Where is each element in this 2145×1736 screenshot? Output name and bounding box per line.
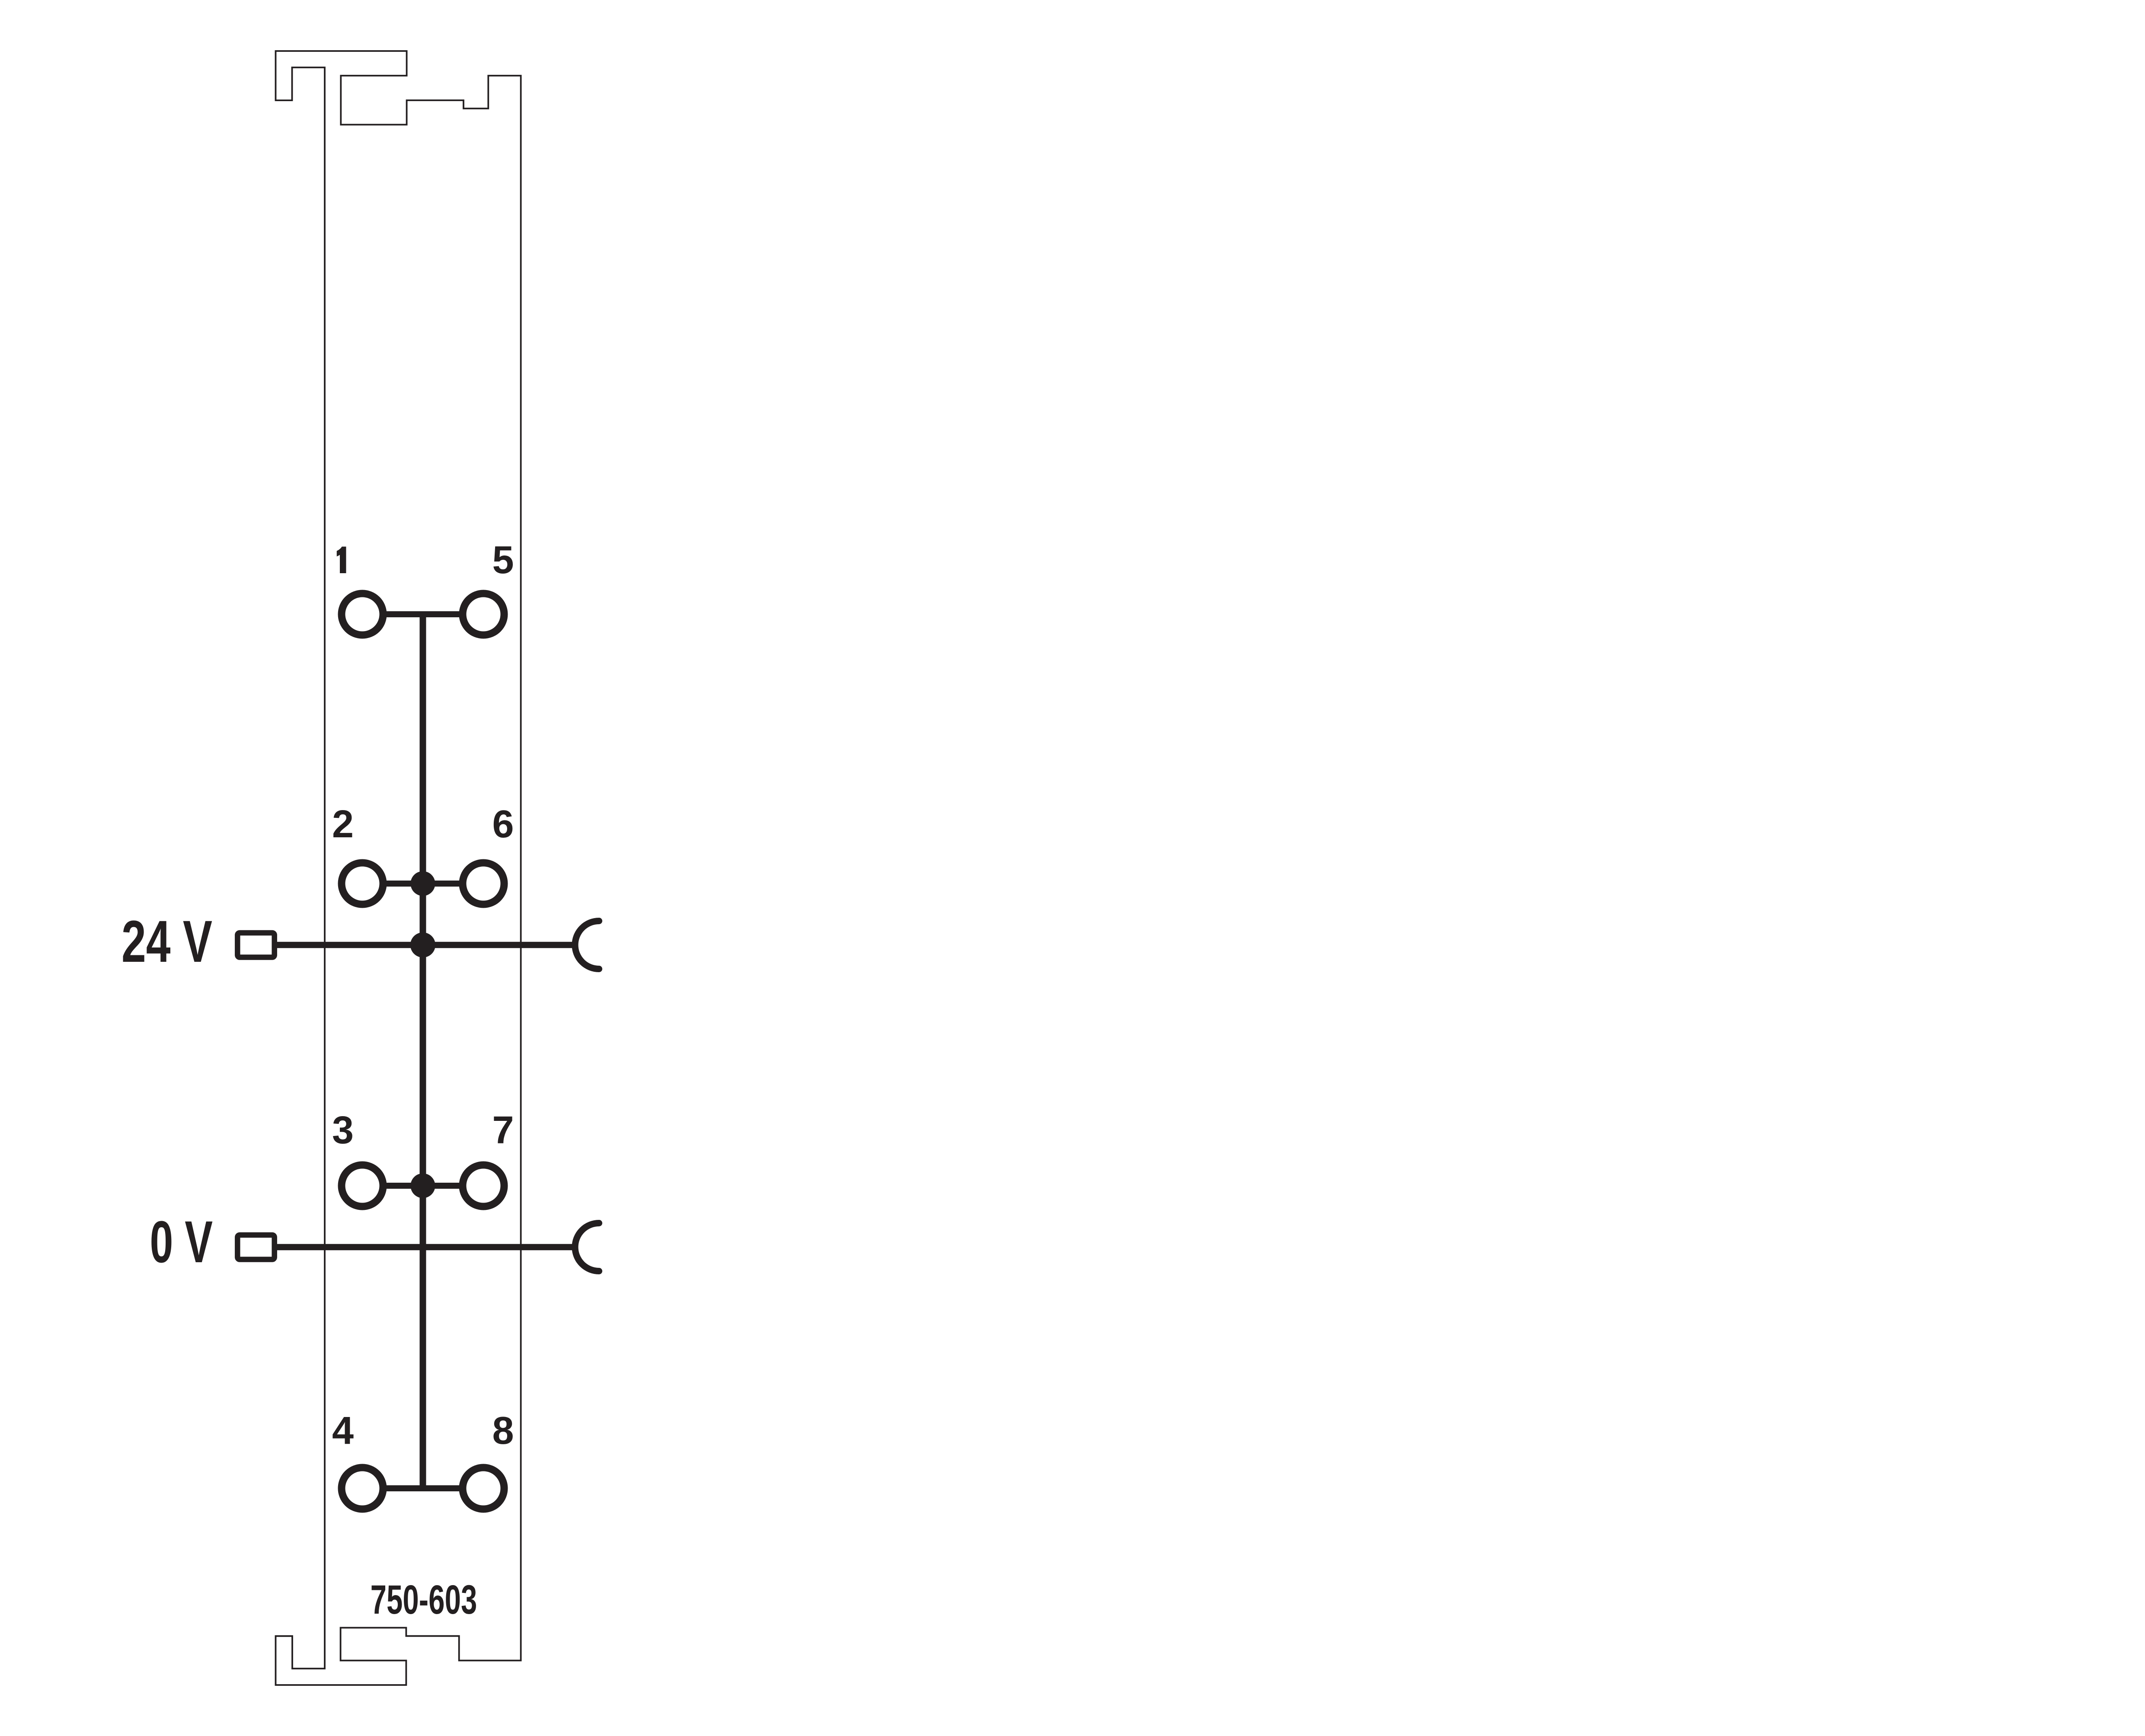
svg-text:7: 7 — [492, 1109, 514, 1152]
svg-text:0 V: 0 V — [150, 1209, 213, 1275]
svg-text:5: 5 — [492, 539, 514, 582]
svg-text:2: 2 — [332, 803, 354, 846]
svg-text:6: 6 — [492, 803, 514, 846]
svg-text:750-603: 750-603 — [371, 1577, 477, 1623]
svg-text:8: 8 — [492, 1409, 514, 1452]
svg-text:3: 3 — [332, 1109, 354, 1152]
svg-text:24 V: 24 V — [121, 909, 212, 975]
svg-text:4: 4 — [332, 1409, 354, 1452]
